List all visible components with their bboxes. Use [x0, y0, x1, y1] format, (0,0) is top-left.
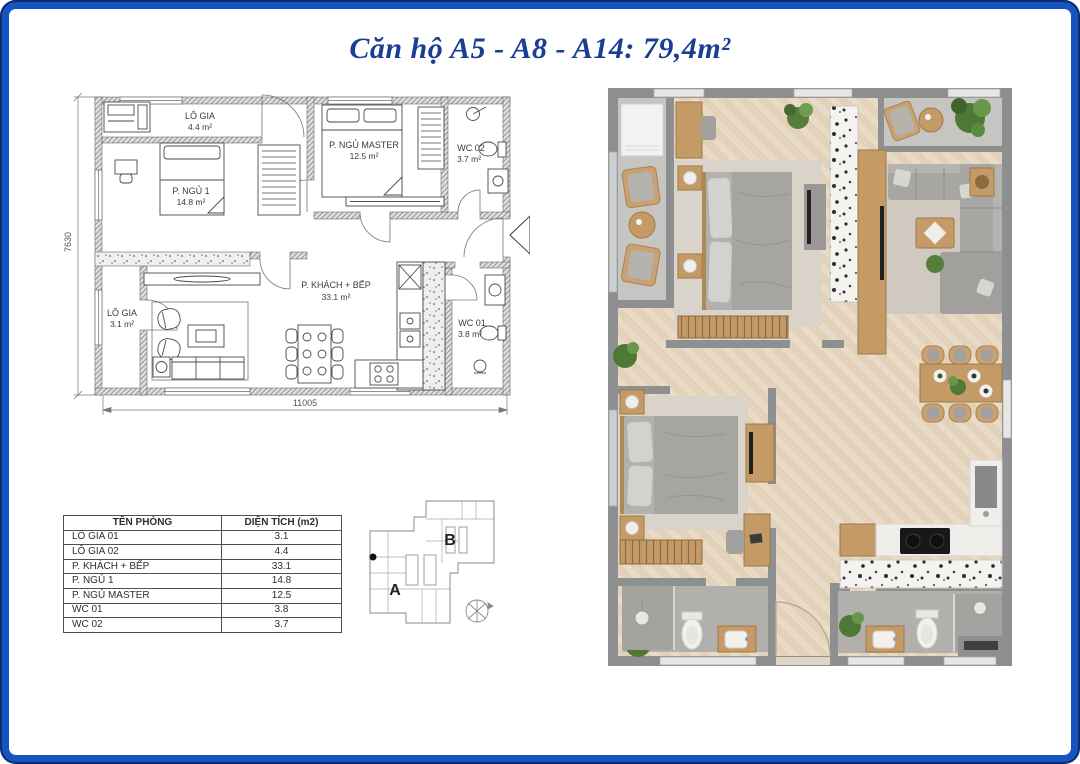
tv-bed2: [749, 432, 753, 474]
dining-area: [920, 346, 1002, 422]
side-table: [153, 357, 170, 377]
cell-room: P. KHÁCH + BẾP: [64, 559, 222, 574]
dressing-desk: [676, 102, 702, 158]
table-row: P. NGỦ MASTER12.5: [64, 588, 342, 603]
dim-vertical: 7630: [63, 232, 73, 252]
cell-area: 4.4: [222, 545, 342, 560]
room-area-living: 33.1 m²: [322, 292, 351, 302]
kitchen-peninsula: [840, 524, 876, 556]
tv-bedroom: [807, 190, 811, 244]
room-label-master: P. NGỦ MASTER: [329, 139, 399, 150]
room-area-wc01: 3.8 m²: [458, 329, 482, 339]
desk-1: [115, 160, 137, 183]
cell-room: LÔ GIA 01: [64, 530, 222, 545]
floorplan-sheet: Căn hộ A5 - A8 - A14: 79,4m²: [0, 0, 1080, 764]
sofa: [172, 357, 244, 379]
entry-door-gap: [776, 657, 830, 665]
room-area-wc02: 3.7 m²: [457, 154, 481, 164]
vanity-2: [866, 626, 904, 652]
table-header-row: TÊN PHÒNG DIỆN TÍCH (m2): [64, 516, 342, 531]
tv-console: [144, 273, 260, 285]
key-plan: A B: [362, 497, 498, 633]
bed-bench: [678, 316, 788, 338]
room-area-logia2: 4.4 m²: [188, 122, 212, 132]
room-area-bed1: 14.8 m²: [177, 197, 206, 207]
area-table: TÊN PHÒNG DIỆN TÍCH (m2) LÔ GIA 013.1 LÔ…: [63, 515, 342, 633]
entrance-arrow: [510, 216, 530, 254]
table-row: LÔ GIA 013.1: [64, 530, 342, 545]
dim-horizontal: 11005: [293, 398, 317, 408]
room-area-master: 12.5 m²: [350, 151, 379, 161]
desk-chair: [701, 116, 716, 140]
bed2-bench: [620, 540, 702, 564]
stove: [355, 360, 423, 388]
bench-master: [346, 197, 444, 206]
room-label-wc02: WC 02: [457, 143, 485, 153]
master-bed: [702, 172, 792, 310]
cell-room: P. NGỦ MASTER: [64, 588, 222, 603]
wardrobe-master: [418, 107, 444, 169]
col-header-room: TÊN PHÒNG: [64, 516, 222, 531]
terrazzo-wardrobe: [830, 106, 858, 302]
cell-room: WC 01: [64, 603, 222, 618]
dining-chairs-bottom: [922, 404, 998, 422]
dining-table: [298, 325, 331, 383]
kitchen-island-strip: [423, 262, 445, 390]
room-label-wc01: WC 01: [458, 318, 486, 328]
room-label-living: P. KHÁCH + BẾP: [301, 280, 371, 290]
table-row: WC 013.8: [64, 603, 342, 618]
dining-chairs-top: [922, 346, 998, 364]
laptop: [750, 533, 763, 544]
col-header-area: DIỆN TÍCH (m2): [222, 516, 342, 531]
armchair-1: [156, 307, 182, 331]
balcony-table: [629, 212, 655, 238]
cell-room: P. NGỦ 1: [64, 574, 222, 589]
room-area-logia1: 3.1 m²: [110, 319, 134, 329]
cell-area: 3.8: [222, 603, 342, 618]
plant-coffee: [926, 255, 944, 273]
cell-area: 33.1: [222, 559, 342, 574]
shower1-head: [635, 611, 649, 625]
island-terrazzo: [840, 560, 1002, 588]
coffee-table-3d: [916, 218, 954, 248]
toilet-2: [916, 610, 938, 648]
cell-room: WC 02: [64, 618, 222, 633]
bed-2: [620, 416, 738, 514]
table-row: WC 023.7: [64, 618, 342, 633]
compass-icon: [466, 600, 493, 622]
desk2-chair: [726, 530, 744, 554]
room-label-logia1: LÔ GIA: [107, 308, 137, 318]
floorplan-3d: [608, 88, 1012, 666]
floorplan-2d: LÔ GIA 4.4 m² P. NGỦ 1 14.8 m² P. NGỦ MA…: [60, 85, 530, 450]
cell-area: 12.5: [222, 588, 342, 603]
toilet-1: [682, 612, 702, 649]
cell-area: 14.8: [222, 574, 342, 589]
balcony-left-items: [621, 104, 663, 287]
shower2-head: [974, 602, 987, 615]
table-row: P. NGỦ 114.8: [64, 574, 342, 589]
cell-area: 3.7: [222, 618, 342, 633]
room-label-bed1: P. NGỦ 1: [172, 185, 209, 196]
coffee-table: [188, 325, 224, 347]
table-row: P. KHÁCH + BẾP33.1: [64, 559, 342, 574]
unit-marker-dot: [370, 554, 377, 561]
section-a-label: A: [389, 582, 401, 599]
room-label-logia2: LÔ GIA: [185, 111, 215, 121]
round-table: [919, 108, 943, 132]
balcony1-cabinet: [104, 102, 150, 132]
section-b-label: B: [444, 532, 456, 549]
ac-unit: [621, 104, 663, 156]
wardrobe-1: [258, 145, 300, 215]
page-title: Căn hộ A5 - A8 - A14: 79,4m²: [0, 32, 1080, 66]
cell-room: LÔ GIA 02: [64, 545, 222, 560]
cell-area: 3.1: [222, 530, 342, 545]
tv-living: [880, 206, 884, 280]
vanity-1: [718, 626, 756, 652]
table-row: LÔ GIA 024.4: [64, 545, 342, 560]
